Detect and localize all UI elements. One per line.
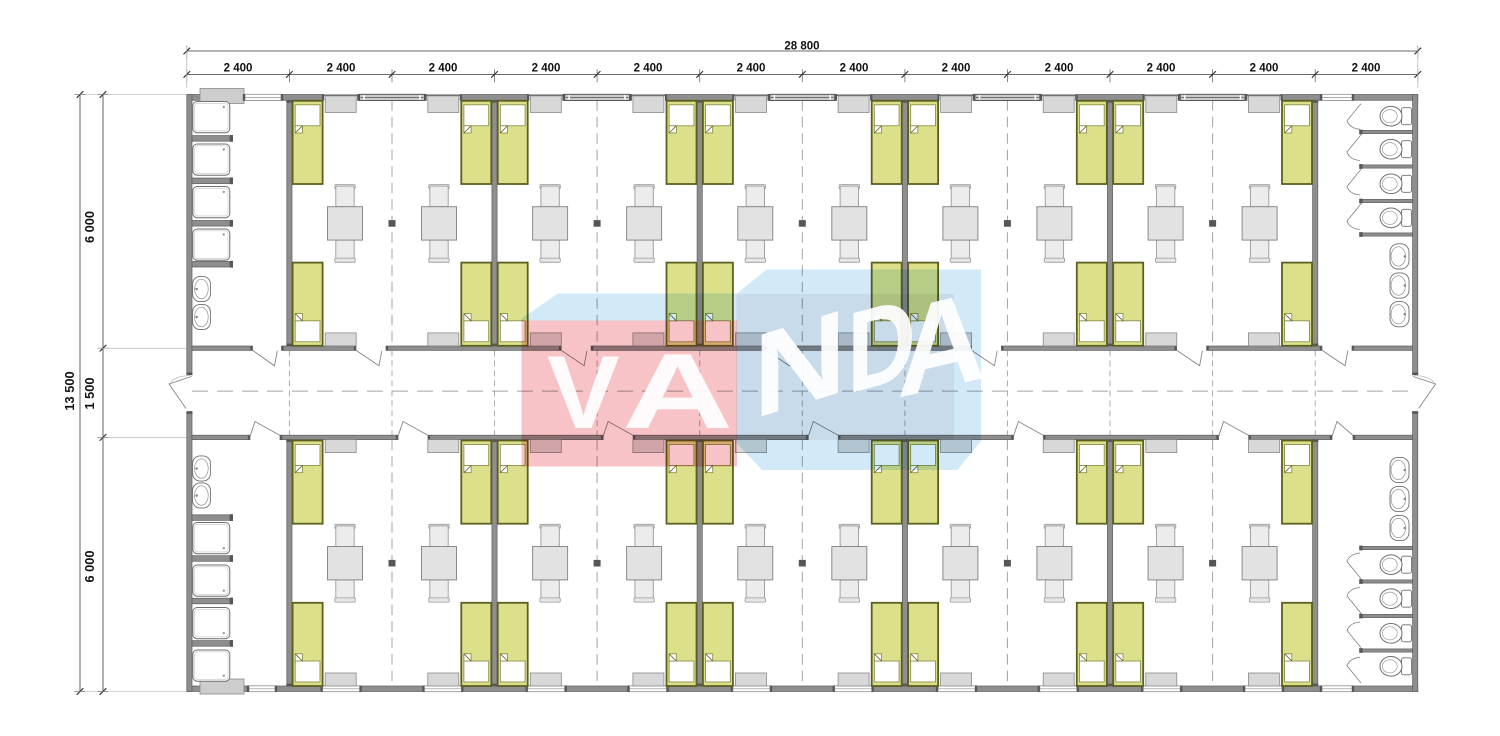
svg-text:2 400: 2 400 — [224, 63, 253, 75]
svg-text:2 400: 2 400 — [634, 63, 663, 75]
svg-text:2 400: 2 400 — [840, 63, 869, 75]
svg-text:2 400: 2 400 — [1352, 63, 1381, 75]
svg-text:2 400: 2 400 — [1045, 63, 1074, 75]
svg-text:28 800: 28 800 — [784, 41, 819, 53]
svg-text:6 000: 6 000 — [82, 211, 97, 243]
svg-text:A: A — [622, 332, 733, 451]
svg-text:2 400: 2 400 — [429, 63, 458, 75]
svg-text:2 400: 2 400 — [532, 63, 561, 75]
svg-text:2 400: 2 400 — [1250, 63, 1279, 75]
svg-text:A: A — [897, 262, 986, 425]
svg-text:13 500: 13 500 — [62, 371, 77, 410]
svg-text:1 500: 1 500 — [82, 377, 97, 409]
svg-text:2 400: 2 400 — [1147, 63, 1176, 75]
svg-text:2 400: 2 400 — [327, 63, 356, 75]
svg-text:V: V — [547, 333, 620, 450]
svg-text:2 400: 2 400 — [737, 63, 766, 75]
svg-text:2 400: 2 400 — [942, 63, 971, 75]
svg-text:6 000: 6 000 — [82, 550, 97, 582]
